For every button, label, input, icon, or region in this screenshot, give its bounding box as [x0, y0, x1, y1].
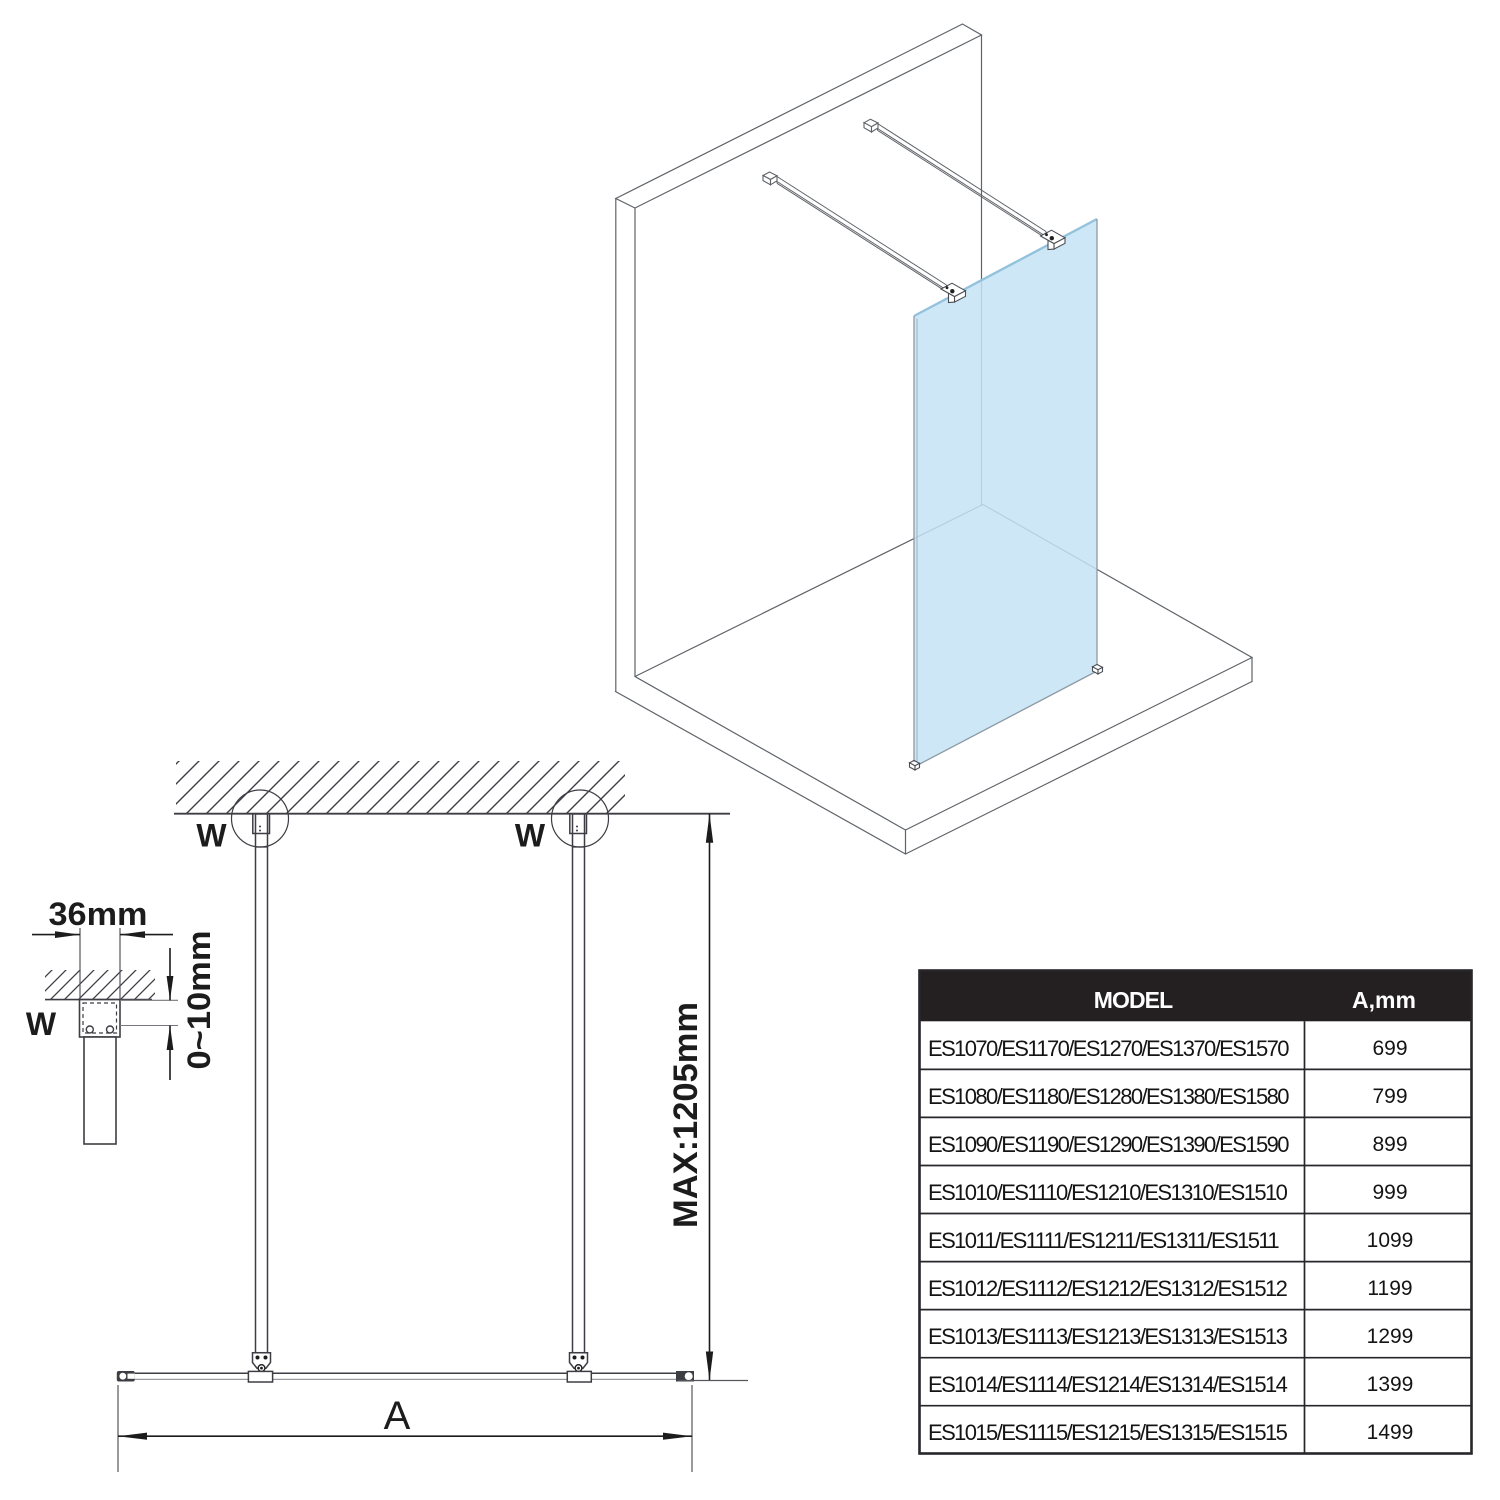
svg-text:MODEL: MODEL: [1094, 987, 1173, 1013]
svg-text:1299: 1299: [1367, 1325, 1414, 1348]
svg-text:MAX:1205mm: MAX:1205mm: [667, 1002, 705, 1228]
svg-text:799: 799: [1372, 1085, 1407, 1108]
svg-text:ES1015/ES1115/ES1215/ES1315/ES: ES1015/ES1115/ES1215/ES1315/ES1515: [928, 1420, 1288, 1445]
svg-text:0~10mm: 0~10mm: [181, 931, 217, 1070]
svg-text:36mm: 36mm: [49, 896, 148, 932]
svg-text:999: 999: [1372, 1181, 1407, 1204]
svg-text:ES1013/ES1113/ES1213/ES1313/ES: ES1013/ES1113/ES1213/ES1313/ES1513: [928, 1324, 1288, 1349]
svg-text:1399: 1399: [1367, 1373, 1414, 1396]
svg-text:A: A: [384, 1394, 411, 1438]
svg-text:ES1070/ES1170/ES1270/ES1370/ES: ES1070/ES1170/ES1270/ES1370/ES1570: [928, 1036, 1289, 1061]
svg-text:ES1010/ES1110/ES1210/ES1310/ES: ES1010/ES1110/ES1210/ES1310/ES1510: [928, 1180, 1288, 1205]
svg-text:699: 699: [1372, 1037, 1407, 1060]
svg-text:899: 899: [1372, 1133, 1407, 1156]
svg-text:1499: 1499: [1367, 1421, 1414, 1444]
svg-text:ES1011/ES1111/ES1211/ES1311/ES: ES1011/ES1111/ES1211/ES1311/ES1511: [928, 1228, 1279, 1253]
svg-text:A,mm: A,mm: [1352, 987, 1416, 1013]
svg-text:W: W: [26, 1006, 57, 1042]
svg-text:W: W: [515, 818, 546, 854]
svg-text:ES1014/ES1114/ES1214/ES1314/ES: ES1014/ES1114/ES1214/ES1314/ES1514: [928, 1372, 1288, 1397]
svg-text:ES1080/ES1180/ES1280/ES1380/ES: ES1080/ES1180/ES1280/ES1380/ES1580: [928, 1084, 1289, 1109]
svg-text:ES1090/ES1190/ES1290/ES1390/ES: ES1090/ES1190/ES1290/ES1390/ES1590: [928, 1132, 1289, 1157]
svg-text:1099: 1099: [1367, 1229, 1414, 1252]
svg-text:W: W: [196, 818, 227, 854]
svg-text:ES1012/ES1112/ES1212/ES1312/ES: ES1012/ES1112/ES1212/ES1312/ES1512: [928, 1276, 1288, 1301]
svg-text:1199: 1199: [1367, 1277, 1412, 1300]
